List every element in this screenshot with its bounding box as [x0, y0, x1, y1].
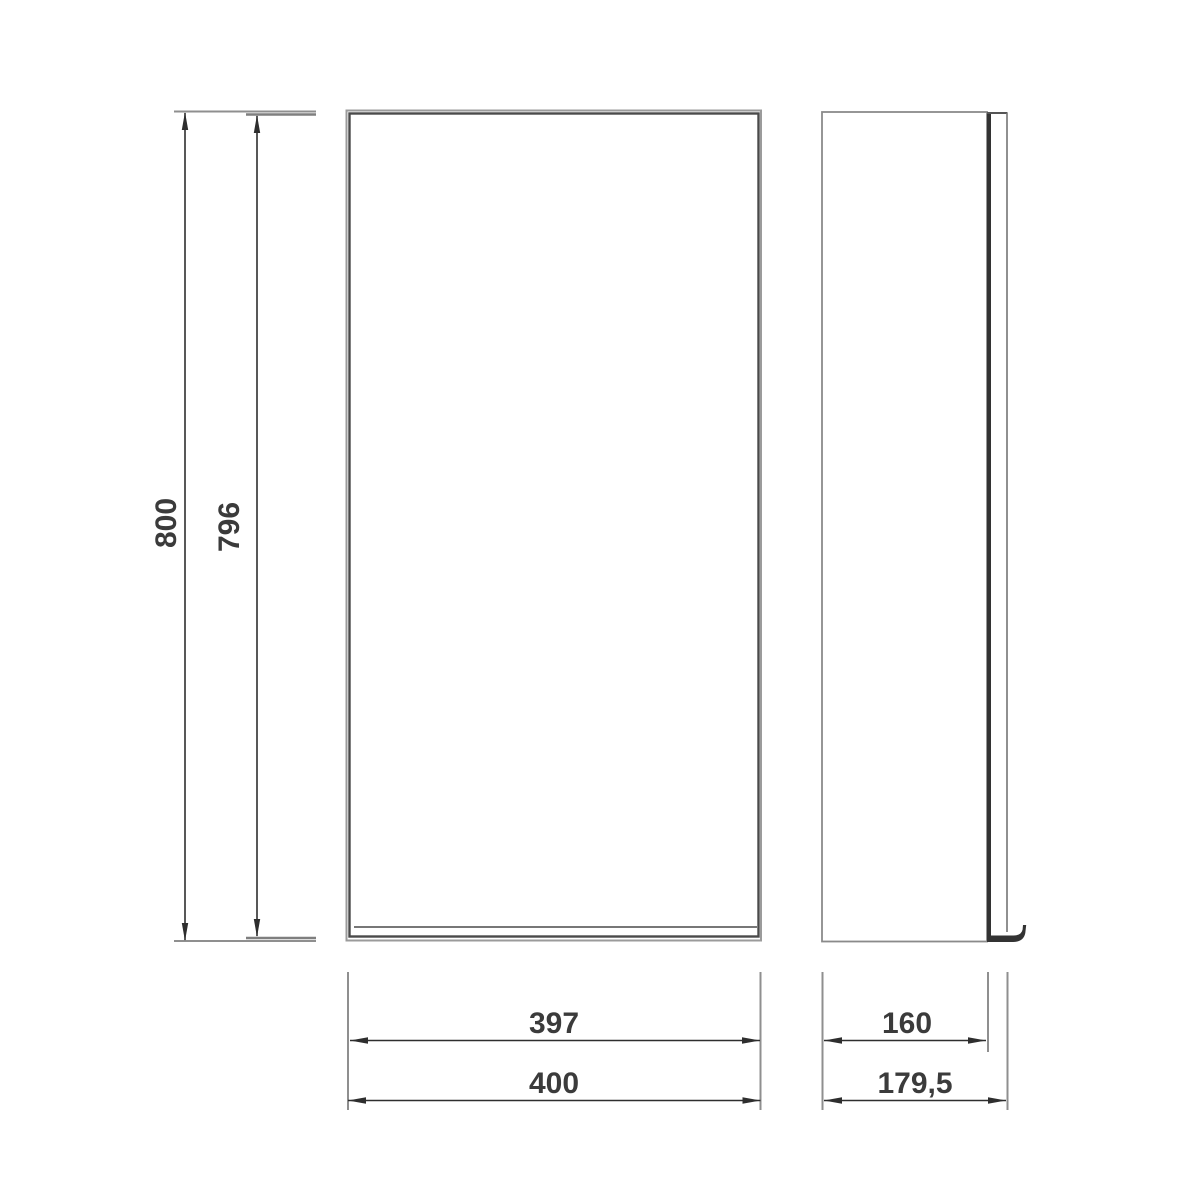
arrow-right-icon	[742, 1037, 760, 1043]
dim-label-overall-height: 800	[150, 498, 183, 548]
arrow-up-icon	[254, 115, 260, 133]
drawing-canvas: 800 796 397 400	[0, 0, 1200, 1200]
dim-label-overall-depth: 179,5	[877, 1067, 952, 1100]
cabinet-dimension-drawing: 800 796 397 400	[0, 0, 1200, 1200]
arrow-right-icon	[743, 1097, 761, 1103]
dim-label-body-depth: 160	[882, 1007, 932, 1040]
arrow-left-icon	[824, 1037, 842, 1043]
arrow-up-icon	[182, 112, 188, 130]
front-door-outline	[350, 114, 759, 937]
arrow-down-icon	[254, 919, 260, 937]
dimension-side-depths: 160 179,5	[823, 972, 1008, 1110]
dimension-front-widths: 397 400	[348, 972, 761, 1110]
dim-label-door-height: 796	[213, 502, 246, 552]
side-body-outline	[822, 112, 987, 942]
arrow-right-icon	[988, 1097, 1006, 1103]
dim-label-overall-width: 400	[529, 1067, 579, 1100]
dim-label-door-width: 397	[529, 1007, 579, 1040]
arrow-left-icon	[350, 1037, 368, 1043]
arrow-left-icon	[348, 1097, 366, 1103]
arrow-left-icon	[824, 1097, 842, 1103]
arrow-down-icon	[182, 923, 188, 941]
dimension-door-height: 796	[213, 115, 316, 939]
front-view	[347, 111, 762, 941]
arrow-right-icon	[968, 1037, 986, 1043]
side-view	[822, 112, 1026, 942]
